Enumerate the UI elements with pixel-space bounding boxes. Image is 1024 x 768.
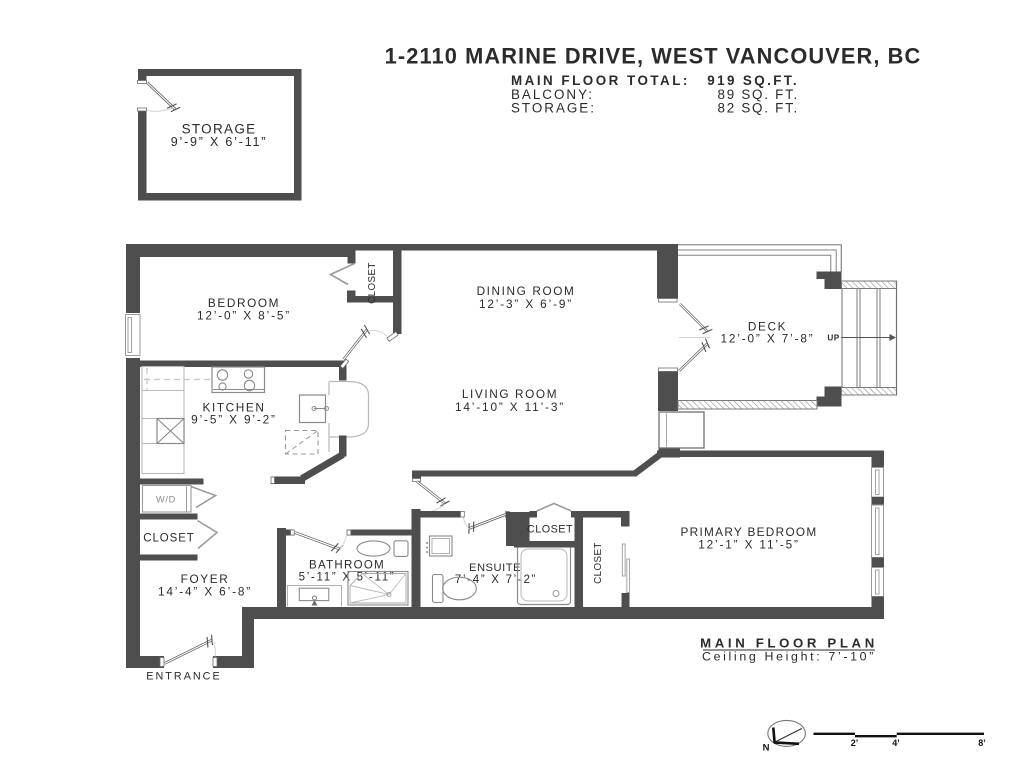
svg-text:BATHROOM: BATHROOM: [309, 560, 385, 572]
svg-text:N: N: [763, 743, 770, 754]
svg-text:MAIN FLOOR PLAN: MAIN FLOOR PLAN: [700, 636, 878, 651]
svg-text:CLOSET: CLOSET: [593, 542, 604, 584]
svg-text:7’-4” X 7’-2”: 7’-4” X 7’-2”: [455, 574, 537, 586]
svg-text:12’-0” X 7’-8”: 12’-0” X 7’-8”: [720, 332, 814, 346]
svg-text:82 SQ. FT.: 82 SQ. FT.: [718, 101, 800, 116]
svg-text:Ceiling Height: 7’-10”: Ceiling Height: 7’-10”: [702, 650, 876, 664]
svg-text:MAIN FLOOR TOTAL:: MAIN FLOOR TOTAL:: [511, 73, 690, 88]
svg-text:UP: UP: [827, 334, 839, 343]
svg-text:DINING ROOM: DINING ROOM: [477, 284, 576, 298]
svg-text:919 SQ.FT.: 919 SQ.FT.: [707, 73, 799, 88]
svg-text:9’-5” X 9’-2”: 9’-5” X 9’-2”: [191, 413, 277, 427]
svg-text:CLOSET: CLOSET: [367, 262, 378, 304]
svg-text:8’: 8’: [978, 738, 986, 748]
svg-text:W/D: W/D: [156, 495, 176, 505]
svg-text:4’: 4’: [892, 738, 900, 748]
svg-text:12’-3” X 6’-9”: 12’-3” X 6’-9”: [479, 297, 573, 311]
svg-text:12’-1” X 11’-5”: 12’-1” X 11’-5”: [698, 538, 800, 552]
svg-text:2’: 2’: [851, 738, 859, 748]
svg-text:9’-9” X 6’-11”: 9’-9” X 6’-11”: [171, 135, 268, 149]
svg-text:12’-0” X 8’-5”: 12’-0” X 8’-5”: [197, 309, 291, 323]
svg-text:CLOSET: CLOSET: [527, 524, 573, 536]
svg-text:14’-4” X 6’-8”: 14’-4” X 6’-8”: [158, 585, 252, 599]
svg-text:LIVING ROOM: LIVING ROOM: [462, 387, 558, 401]
svg-text:ENSUITE: ENSUITE: [469, 562, 521, 574]
svg-text:CLOSET: CLOSET: [143, 533, 194, 545]
svg-text:14’-10” X 11’-3”: 14’-10” X 11’-3”: [455, 400, 565, 414]
svg-text:ENTRANCE: ENTRANCE: [146, 671, 221, 683]
svg-text:1-2110 MARINE DRIVE, WEST VANC: 1-2110 MARINE DRIVE, WEST VANCOUVER, BC: [385, 44, 922, 69]
svg-text:STORAGE:: STORAGE:: [511, 101, 596, 116]
